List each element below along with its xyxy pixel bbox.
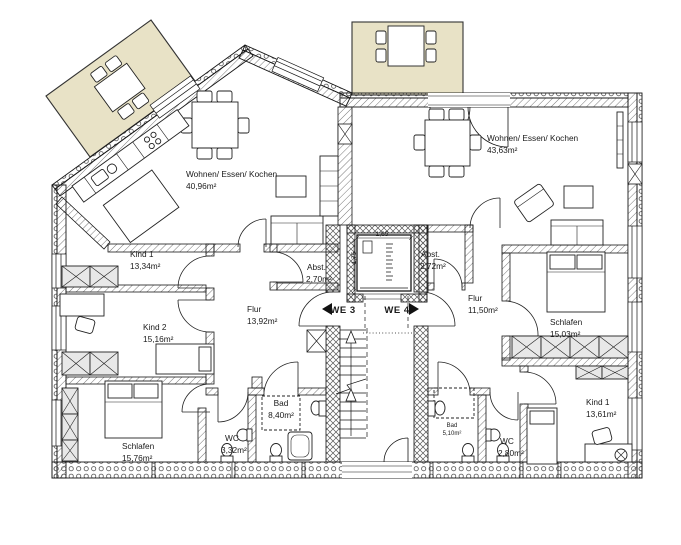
room-label-we4-schlafen: Schlafen bbox=[550, 317, 583, 327]
shelf-we3 bbox=[320, 156, 338, 216]
tv-board-we3 bbox=[276, 176, 306, 197]
toilet-bad-we3 bbox=[270, 444, 282, 463]
room-label-we3-wohnen: Wohnen/ Essen/ Kochen bbox=[186, 169, 278, 179]
sofa-we4 bbox=[551, 220, 603, 245]
plant-we4 bbox=[615, 449, 627, 461]
desk-we3 bbox=[60, 294, 104, 316]
room-area-we4-kind1: 13,61m² bbox=[586, 409, 617, 419]
room-area-we3-bad: 8,40m² bbox=[268, 410, 294, 420]
coffee-table-we4 bbox=[564, 186, 593, 208]
unit-label-we4: WE 4 bbox=[384, 305, 409, 316]
room-area-we3-wohnen: 40,96m² bbox=[186, 181, 217, 191]
balcony-terrace-center bbox=[352, 22, 463, 95]
room-area-we3-schlafen: 15,76m² bbox=[122, 453, 153, 463]
sofa-we3 bbox=[271, 216, 323, 244]
floor-plan-drawing: Wohnen/ Essen/ Kochen 40,96m² Kind 1 13,… bbox=[0, 0, 681, 545]
room-label-we3-flur: Flur bbox=[247, 304, 262, 314]
window-right-wohnen bbox=[628, 122, 642, 162]
room-area-we3-abst: 2,70m² bbox=[306, 274, 332, 284]
room-label-we4-wc: WC bbox=[500, 436, 514, 446]
room-label-we3-bad: Bad bbox=[274, 398, 289, 408]
toilet-bad-we4 bbox=[462, 444, 474, 463]
room-area-we3-kind1: 13,34m² bbox=[130, 261, 161, 271]
room-area-we4-wohnen: 43,63m² bbox=[487, 145, 518, 155]
room-label-we3-kind2: Kind 2 bbox=[143, 322, 167, 332]
window-right-schlafen bbox=[628, 302, 642, 352]
room-label-we4-kind1: Kind 1 bbox=[586, 397, 610, 407]
bed-kind1-we4 bbox=[527, 408, 557, 464]
radiator-we4 bbox=[617, 112, 623, 168]
room-label-we3-abst: Abst. bbox=[307, 262, 326, 272]
bed-schlafen-we3 bbox=[105, 381, 162, 438]
room-area-we4-bad: 5,10m² bbox=[443, 431, 462, 437]
room-area-we3-kind2: 15,16m² bbox=[143, 334, 174, 344]
room-label-we4-flur: Flur bbox=[468, 293, 483, 303]
room-label-we4-abst: Abst. bbox=[421, 249, 440, 259]
floor-plan-page: Wohnen/ Essen/ Kochen 40,96m² Kind 1 13,… bbox=[0, 0, 681, 545]
room-area-we4-schlafen: 15,03m² bbox=[550, 329, 581, 339]
washbasin-bad-we3 bbox=[311, 401, 326, 416]
room-label-we3-kind1: Kind 1 bbox=[130, 249, 154, 259]
unit-label-we3: WE 3 bbox=[330, 305, 355, 316]
bed-schlafen-we4 bbox=[547, 252, 605, 312]
room-area-we4-flur: 11,50m² bbox=[468, 305, 498, 315]
room-area-we4-wc: 2,80m² bbox=[498, 448, 524, 458]
sink-wc-we3 bbox=[237, 429, 252, 441]
window-right-kind1 bbox=[628, 398, 642, 450]
room-area-we3-flur: 13,92m² bbox=[247, 316, 278, 326]
dim-elevator-width: 1,65 bbox=[376, 231, 389, 238]
window-right-wohnen2 bbox=[628, 226, 642, 278]
dim-elevator-depth: 1,75 bbox=[351, 251, 358, 264]
room-area-we4-abst: 2,72m² bbox=[420, 261, 446, 271]
room-label-we4-bad: Bad bbox=[447, 423, 458, 429]
room-label-we4-wohnen: Wohnen/ Essen/ Kochen bbox=[487, 133, 579, 143]
bathtub-we3 bbox=[288, 432, 312, 460]
room-label-we3-wc: WC bbox=[225, 433, 239, 443]
room-area-we3-wc: 3,32m² bbox=[221, 445, 247, 455]
bed-kind2-we3 bbox=[156, 344, 214, 374]
room-label-we3-schlafen: Schlafen bbox=[122, 441, 155, 451]
sink-wc-we4 bbox=[486, 429, 500, 441]
